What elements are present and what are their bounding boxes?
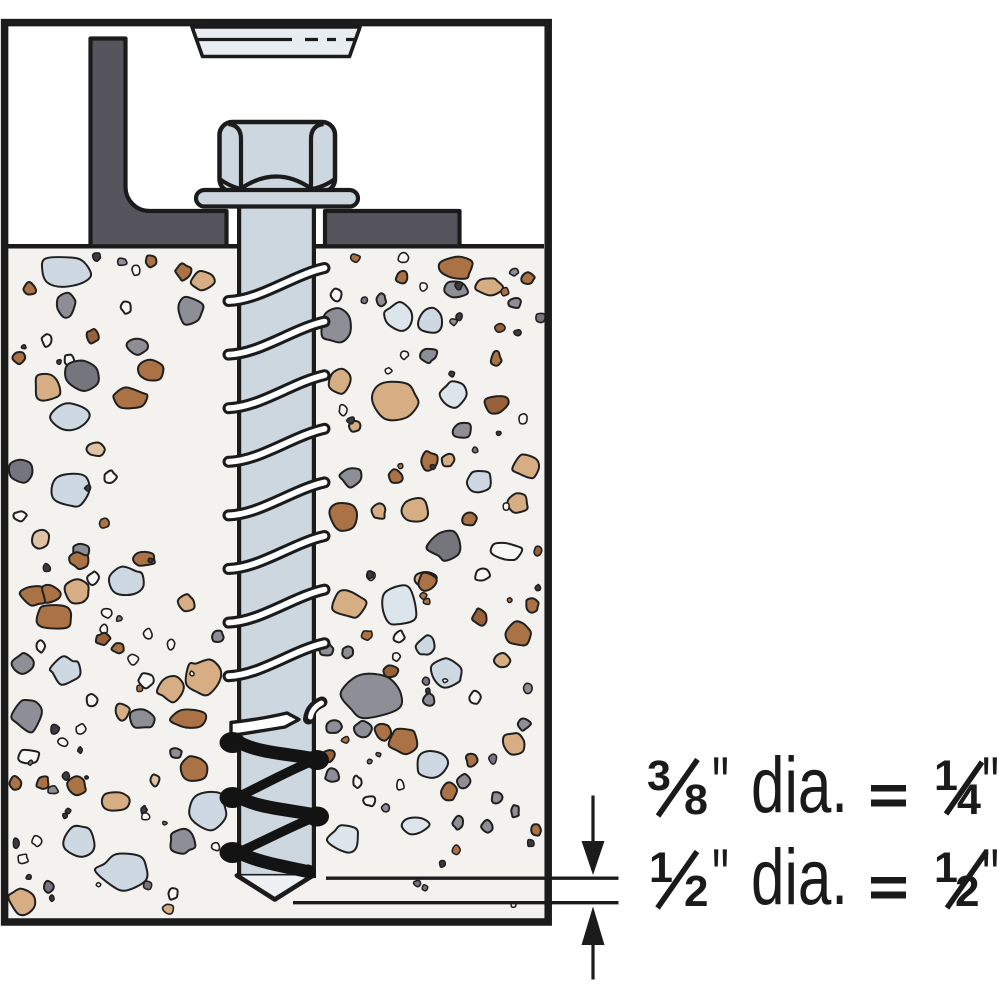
svg-text:": " xyxy=(982,740,999,829)
svg-text:dia.: dia. xyxy=(751,832,848,921)
svg-text:4: 4 xyxy=(957,776,981,824)
svg-text:1: 1 xyxy=(649,844,673,892)
svg-text:8: 8 xyxy=(684,776,708,824)
svg-text:dia.: dia. xyxy=(751,740,848,829)
svg-text:": " xyxy=(712,740,729,829)
svg-text:": " xyxy=(712,832,729,921)
svg-text:1: 1 xyxy=(934,752,958,800)
svg-text:2: 2 xyxy=(684,867,708,916)
svg-text:": " xyxy=(982,832,999,921)
svg-text:2: 2 xyxy=(955,867,979,916)
svg-text:3: 3 xyxy=(647,752,671,800)
